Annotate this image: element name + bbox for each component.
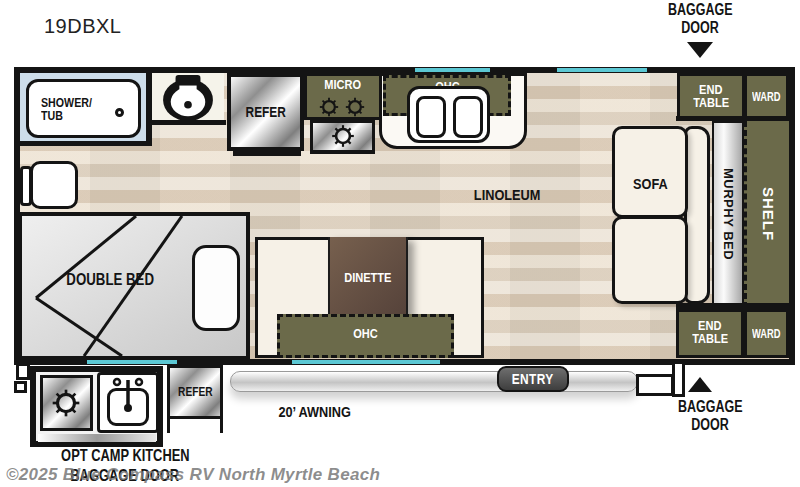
camp-sink <box>97 372 159 433</box>
window <box>292 360 440 364</box>
wardrobe-top: WARD <box>744 73 789 121</box>
wardrobe-bottom: WARD <box>744 309 789 358</box>
partition-wall <box>676 303 789 309</box>
burner-icon <box>50 387 82 419</box>
bumper <box>16 363 30 380</box>
arrow-down-icon <box>687 42 713 58</box>
opt-camp-kitchen-label: OPT CAMP KITCHEN <box>30 447 220 464</box>
entry-step <box>636 374 674 396</box>
pillow <box>192 245 240 331</box>
refer-label: REFER <box>245 104 285 120</box>
dinette-ohc: OHC <box>277 314 454 358</box>
floor-plan: 19DBXL BAGGAGE DOOR SHOWER/ TUB REFER MI… <box>0 0 800 487</box>
awning <box>230 371 638 392</box>
arrow-up-icon <box>688 377 712 392</box>
window <box>415 68 490 72</box>
sink-bowl <box>416 96 446 138</box>
partition-wall <box>676 116 789 121</box>
sofa-cushion <box>612 216 688 304</box>
window <box>557 68 647 72</box>
microwave-cabinet: MICRO <box>304 73 382 120</box>
camp-refer-body: REFER <box>170 368 220 416</box>
chair-seat <box>30 161 78 209</box>
bumper <box>14 381 27 393</box>
burner-icon <box>330 123 356 149</box>
sofa-cushion <box>612 126 688 218</box>
sofa-label: SOFA <box>612 174 688 192</box>
end-table-top: END TABLE <box>677 73 745 121</box>
linoleum-label: LINOLEUM <box>455 185 560 203</box>
baggage-door-label-top: BAGGAGE DOOR <box>650 1 750 37</box>
model-title: 19DBXL <box>44 15 122 38</box>
watermark: ©2025 Blue Compass RV North Myrtle Beach <box>6 465 436 485</box>
micro-label: MICRO <box>325 77 362 92</box>
camp-kitchen-base <box>38 434 156 442</box>
refrigerator: REFER <box>227 73 304 151</box>
shower-tub: SHOWER/ TUB <box>26 79 141 138</box>
baggage-door-line2: DOOR <box>681 19 718 37</box>
murphy-bed: MURPHY BED <box>712 121 744 308</box>
sink-bowl <box>453 96 483 138</box>
baggage-door-line1: BAGGAGE <box>668 1 732 19</box>
kitchen-sink <box>407 86 490 143</box>
door-frame <box>672 361 685 397</box>
camp-kitchen-refer: REFER <box>167 365 223 433</box>
drain-icon <box>115 108 124 117</box>
baggage-door-label-bottom-right: BAGGAGE DOOR <box>655 398 765 434</box>
camp-refer-base <box>170 416 220 433</box>
end-table-bottom: END TABLE <box>676 309 744 358</box>
dinette-table: DINETTE <box>328 237 408 317</box>
shower-label-line2: TUB <box>41 110 63 123</box>
double-bed-label: DOUBLE BED <box>30 270 190 290</box>
entry-badge: ENTRY <box>497 366 569 392</box>
faucet-icon <box>100 375 156 430</box>
bathroom-wall-bottom <box>20 141 152 146</box>
bathroom-wall-vertical <box>146 73 152 146</box>
window <box>87 360 177 364</box>
refrigerator-ledge <box>233 151 301 156</box>
awning-label: 20’ AWNING <box>250 402 380 420</box>
toilet-icon <box>162 75 214 121</box>
burner-icon <box>318 96 340 118</box>
shelf: SHELF <box>744 121 789 308</box>
toilet-room-wall <box>152 120 226 125</box>
burner-icon <box>344 96 366 118</box>
